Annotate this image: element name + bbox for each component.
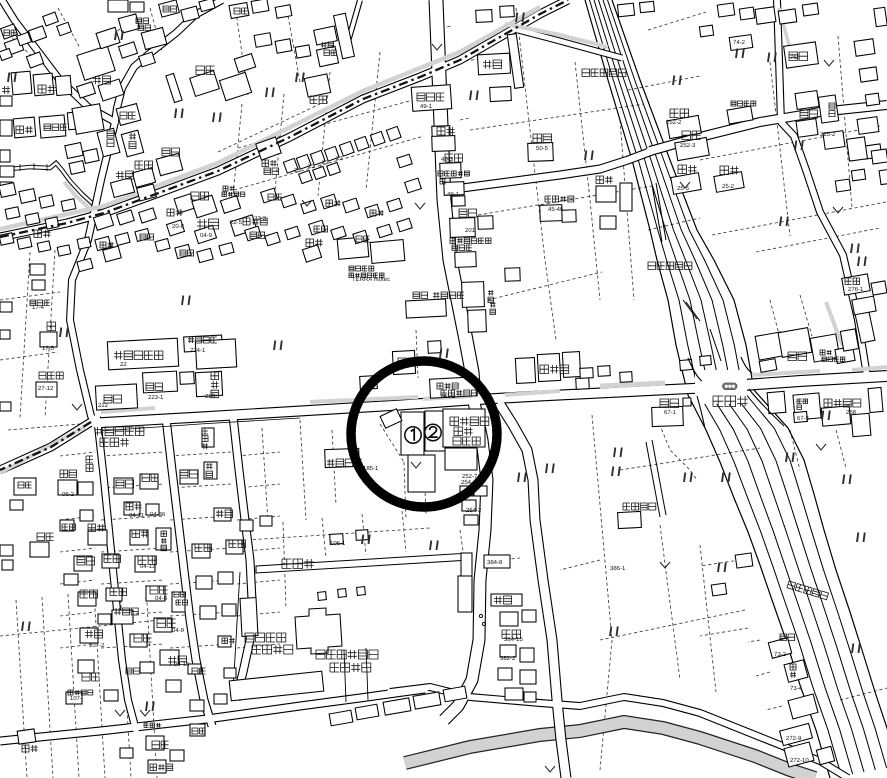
svg-text:04-36: 04-36 [150,511,166,518]
svg-text:45-46: 45-46 [548,206,564,213]
svg-text:23: 23 [322,159,329,166]
svg-text:22: 22 [120,361,127,368]
svg-text:22-3: 22-3 [254,215,267,222]
svg-text:223-1: 223-1 [148,394,164,401]
svg-text:272-9: 272-9 [786,735,802,742]
svg-text:17-5: 17-5 [42,345,55,352]
svg-text:225: 225 [205,393,216,400]
svg-text:225-2: 225-2 [820,131,836,138]
svg-text:67-1: 67-1 [664,409,677,416]
svg-text:04-11: 04-11 [129,512,145,519]
svg-text:06-2: 06-2 [62,491,75,498]
svg-text:106-1: 106-1 [330,540,346,547]
svg-text:23: 23 [308,163,315,170]
svg-text:222: 222 [98,402,109,409]
svg-text:384-8: 384-8 [487,559,503,566]
svg-text:25-2: 25-2 [722,183,735,190]
svg-text:268: 268 [846,409,857,416]
svg-text:27-12: 27-12 [38,385,54,392]
svg-text:67-5: 67-5 [797,415,810,422]
svg-text:272-10: 272-10 [790,757,809,764]
svg-text:382-2: 382-2 [500,655,516,662]
svg-text:224-1: 224-1 [190,347,206,354]
svg-text:TERRA motec: TERRA motec [352,276,390,283]
svg-text:241-2: 241-2 [440,393,456,400]
svg-text:73-4: 73-4 [790,685,803,692]
svg-text:107-: 107- [70,695,82,702]
svg-text:74-2: 74-2 [733,39,746,46]
svg-text:73-2: 73-2 [774,651,787,658]
svg-text:04-8: 04-8 [155,595,168,602]
svg-text:04-9: 04-9 [172,627,185,634]
svg-text:49-1: 49-1 [447,191,460,198]
svg-text:49-1: 49-1 [420,103,433,110]
svg-text:04-16: 04-16 [174,661,190,668]
svg-text:20-8: 20-8 [172,223,185,230]
svg-text:23: 23 [336,155,343,162]
svg-text:04-13: 04-13 [140,563,156,570]
svg-text:22-5: 22-5 [230,219,243,226]
svg-text:49-3: 49-3 [441,156,454,163]
svg-text:23: 23 [294,167,301,174]
svg-text:254-2: 254-2 [466,507,482,514]
svg-text:04-9: 04-9 [200,232,213,239]
svg-text:107-2: 107-2 [89,642,105,649]
svg-text:766: 766 [790,54,801,61]
svg-text:252-2: 252-2 [666,119,682,126]
svg-text:386-1: 386-1 [610,565,626,572]
svg-text:17-4: 17-4 [32,304,45,311]
svg-text:252-3: 252-3 [680,142,696,149]
svg-text:50-5: 50-5 [536,145,549,152]
svg-text:276-1: 276-1 [848,286,864,293]
svg-text:201: 201 [465,227,476,234]
svg-text:384-15: 384-15 [504,636,523,643]
